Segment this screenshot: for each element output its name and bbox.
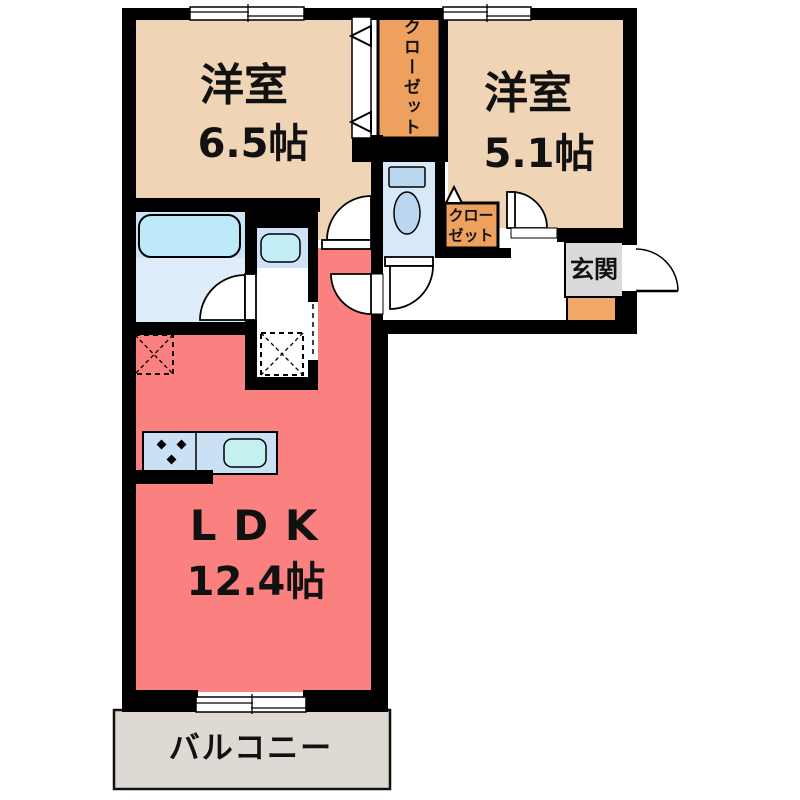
bedroom-2-size: 5.1帖 (484, 133, 595, 175)
balcony-label: バルコニー (169, 733, 333, 766)
closet-small-label-line2: ゼット (448, 226, 493, 247)
bedroom-1-size: 6.5帖 (198, 123, 309, 165)
closet-small-label-line1: クロー (448, 206, 493, 227)
bedroom-2-label: 洋室 (484, 71, 572, 117)
bathtub-icon (139, 215, 240, 257)
washbasin-icon (261, 234, 300, 262)
bedroom-2-floor (448, 20, 623, 228)
entrance-label: 玄関 (570, 257, 618, 282)
window-icon (190, 4, 304, 22)
ldk-label: LDK (190, 504, 335, 548)
balcony-window-icon (196, 694, 306, 714)
front-door-arc-icon (622, 245, 678, 291)
sliding-door-icon (308, 302, 318, 360)
shoe-cabinet (567, 297, 617, 322)
bedroom-1-label: 洋室 (200, 63, 288, 109)
folding-door-icon (351, 17, 371, 138)
closet-main-label: クローゼット (400, 18, 418, 138)
ldk-size: 12.4帖 (187, 561, 326, 603)
window-icon (443, 4, 531, 22)
kitchen-counter-icon (143, 432, 277, 474)
floor-plan: 洋室 6.5帖 洋室 5.1帖 クローゼット クロー ゼット 玄関 LDK 12… (0, 0, 800, 800)
